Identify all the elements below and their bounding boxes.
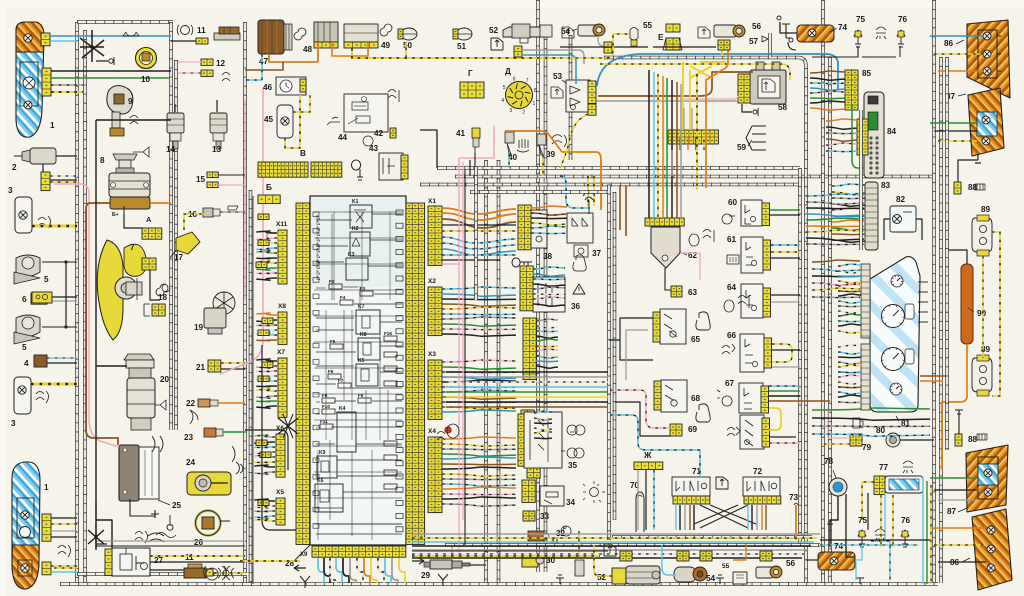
svg-text:1: 1 — [50, 121, 55, 130]
svg-text:25: 25 — [172, 501, 182, 510]
svg-text:2: 2 — [12, 163, 17, 172]
svg-text:54: 54 — [706, 574, 716, 583]
svg-text:8: 8 — [100, 156, 105, 165]
svg-text:27: 27 — [154, 556, 164, 565]
svg-text:6: 6 — [513, 77, 516, 83]
svg-text:4: 4 — [24, 359, 29, 368]
svg-text:18: 18 — [158, 293, 168, 302]
svg-text:39: 39 — [546, 150, 556, 159]
svg-text:86: 86 — [944, 39, 954, 48]
svg-text:75: 75 — [856, 15, 866, 24]
svg-text:55: 55 — [722, 563, 730, 570]
svg-text:76: 76 — [898, 15, 908, 24]
svg-text:78: 78 — [824, 457, 834, 466]
svg-text:45: 45 — [264, 115, 274, 124]
svg-text:K2: K2 — [352, 226, 359, 232]
svg-text:F6: F6 — [328, 369, 334, 374]
svg-text:11: 11 — [197, 26, 206, 35]
svg-text:66: 66 — [727, 331, 737, 340]
svg-text:Д: Д — [505, 67, 511, 76]
svg-text:1: 1 — [44, 483, 49, 492]
svg-text:12: 12 — [216, 59, 226, 68]
svg-text:82: 82 — [896, 195, 906, 204]
svg-text:K1: K1 — [352, 199, 359, 205]
svg-text:5: 5 — [22, 343, 27, 352]
svg-text:53: 53 — [553, 72, 563, 81]
svg-text:63: 63 — [688, 288, 698, 297]
svg-text:3: 3 — [509, 108, 512, 114]
svg-text:22: 22 — [186, 399, 196, 408]
svg-text:K8: K8 — [360, 332, 367, 338]
svg-text:41: 41 — [456, 129, 466, 138]
svg-text:89: 89 — [981, 205, 991, 214]
svg-text:9: 9 — [128, 97, 133, 106]
svg-text:Г: Г — [468, 69, 473, 78]
svg-text:7: 7 — [526, 78, 529, 84]
svg-text:90: 90 — [977, 309, 987, 318]
svg-text:47: 47 — [259, 57, 269, 66]
svg-text:64: 64 — [727, 283, 737, 292]
svg-text:20: 20 — [160, 375, 170, 384]
svg-text:6: 6 — [22, 295, 27, 304]
svg-text:19: 19 — [194, 323, 204, 332]
svg-text:72: 72 — [753, 467, 763, 476]
svg-text:K7: K7 — [358, 304, 365, 310]
svg-text:35: 35 — [568, 461, 578, 470]
svg-text:В: В — [300, 149, 306, 158]
svg-text:65: 65 — [691, 335, 701, 344]
svg-text:50: 50 — [403, 41, 413, 50]
svg-text:87: 87 — [947, 507, 957, 516]
svg-text:52: 52 — [489, 26, 499, 35]
svg-text:56: 56 — [752, 22, 762, 31]
svg-text:77: 77 — [879, 463, 889, 472]
svg-text:X7: X7 — [277, 349, 285, 356]
svg-text:51: 51 — [457, 42, 467, 51]
svg-text:38: 38 — [543, 252, 553, 261]
svg-text:13: 13 — [212, 145, 222, 154]
svg-text:60: 60 — [728, 198, 738, 207]
svg-text:21: 21 — [196, 363, 206, 372]
svg-text:X11: X11 — [276, 221, 288, 228]
svg-text:Ж: Ж — [643, 451, 652, 460]
svg-text:76: 76 — [901, 516, 911, 525]
svg-text:Б+: Б+ — [112, 212, 119, 218]
svg-text:79: 79 — [862, 443, 872, 452]
svg-text:42: 42 — [374, 129, 384, 138]
svg-text:8: 8 — [534, 88, 537, 94]
svg-text:X3: X3 — [428, 351, 436, 358]
svg-text:5: 5 — [503, 85, 506, 91]
svg-text:3: 3 — [11, 419, 16, 428]
svg-text:74: 74 — [838, 23, 848, 32]
svg-text:K4: K4 — [339, 406, 346, 412]
svg-text:56: 56 — [786, 559, 796, 568]
svg-text:F5: F5 — [330, 339, 336, 344]
svg-text:54: 54 — [561, 27, 571, 36]
svg-text:73: 73 — [789, 493, 799, 502]
svg-text:67: 67 — [725, 379, 735, 388]
svg-text:10: 10 — [141, 75, 151, 84]
svg-text:X8: X8 — [278, 303, 286, 310]
svg-text:K9: K9 — [319, 450, 326, 456]
svg-text:84: 84 — [887, 127, 897, 136]
svg-text:15: 15 — [196, 175, 206, 184]
svg-text:17: 17 — [174, 253, 184, 262]
svg-text:7: 7 — [130, 243, 135, 252]
svg-text:2: 2 — [522, 109, 525, 115]
svg-text:F7: F7 — [338, 378, 344, 383]
svg-text:3: 3 — [8, 186, 13, 195]
svg-text:X1: X1 — [428, 198, 436, 205]
svg-text:X5: X5 — [276, 489, 284, 496]
svg-text:46: 46 — [263, 83, 273, 92]
svg-text:4: 4 — [501, 98, 504, 104]
svg-text:F16: F16 — [384, 331, 392, 336]
svg-text:37: 37 — [592, 249, 602, 258]
svg-text:44: 44 — [338, 133, 348, 142]
svg-text:68: 68 — [691, 394, 701, 403]
svg-text:23: 23 — [184, 433, 194, 442]
svg-text:69: 69 — [688, 425, 698, 434]
svg-text:K5: K5 — [358, 358, 365, 364]
svg-text:74: 74 — [834, 542, 844, 551]
svg-text:34: 34 — [566, 498, 576, 507]
svg-text:88: 88 — [968, 435, 978, 444]
svg-text:57: 57 — [749, 37, 759, 46]
svg-text:33: 33 — [540, 512, 550, 521]
svg-text:75: 75 — [858, 516, 868, 525]
svg-text:E: E — [658, 33, 664, 42]
svg-text:83: 83 — [881, 181, 891, 190]
svg-text:52: 52 — [597, 573, 607, 582]
svg-text:X2: X2 — [428, 278, 436, 285]
svg-text:29: 29 — [421, 571, 431, 580]
svg-text:14: 14 — [166, 145, 176, 154]
svg-text:36: 36 — [571, 302, 581, 311]
svg-text:85: 85 — [862, 69, 872, 78]
svg-text:1: 1 — [533, 101, 536, 107]
svg-text:5: 5 — [44, 275, 49, 284]
svg-text:59: 59 — [737, 143, 747, 152]
svg-text:58: 58 — [778, 103, 788, 112]
svg-text:80: 80 — [876, 426, 886, 435]
svg-text:11: 11 — [185, 553, 194, 562]
svg-text:61: 61 — [727, 235, 737, 244]
svg-text:24: 24 — [186, 458, 196, 467]
svg-text:55: 55 — [643, 21, 653, 30]
svg-text:X9: X9 — [300, 552, 308, 558]
svg-text:Б: Б — [266, 183, 272, 192]
svg-text:49: 49 — [381, 41, 391, 50]
svg-text:A: A — [146, 215, 152, 224]
svg-text:F4: F4 — [340, 295, 346, 300]
svg-text:48: 48 — [303, 45, 313, 54]
svg-text:X4: X4 — [428, 428, 436, 435]
svg-text:K3: K3 — [348, 252, 355, 258]
